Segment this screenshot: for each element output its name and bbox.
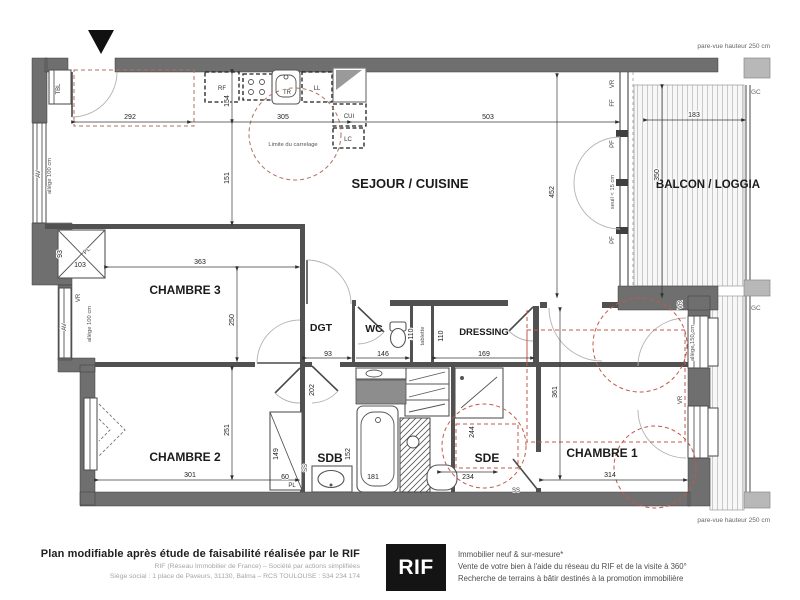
dim-dressing-width: 169	[478, 351, 490, 358]
footer-title: Plan modifiable après étude de faisabili…	[20, 548, 360, 560]
sde-basin	[427, 465, 457, 490]
room-label-chambre3: CHAMBRE 3	[149, 283, 221, 297]
tag-av-1: AV	[36, 170, 42, 178]
sde-door	[513, 459, 537, 489]
footer-services: Immobilier neuf & sur-mesure* Vente de v…	[458, 549, 687, 585]
rif-logo: RIF	[386, 544, 446, 591]
dim-balcon-depth: 350	[654, 169, 661, 181]
room-label-sdb: SDB	[317, 451, 343, 465]
chambre2-window	[84, 398, 97, 470]
footer-disclaimer: Plan modifiable après étude de faisabili…	[20, 548, 360, 582]
dim-ch1-width: 314	[604, 472, 616, 479]
dim-kitchen-width: 305	[277, 114, 289, 121]
tag-sink: TR	[283, 90, 292, 96]
chambre1-door	[549, 308, 602, 361]
tag-gc-1: GC	[751, 89, 761, 96]
annotation-tiling-limit: Limite du carrelage	[268, 142, 317, 148]
room-label-sde: SDE	[475, 451, 500, 465]
dim-ch2-depth: 251	[224, 424, 231, 436]
dim-ch3-width: 363	[194, 259, 206, 266]
pillar	[744, 58, 770, 78]
sejour-window-wall	[616, 72, 633, 286]
room-label-sejour: SEJOUR / CUISINE	[351, 176, 468, 191]
annotation-sill-100-1: allège 100 cm	[47, 158, 53, 194]
annotation-pare-vue-top: pare-vue hauteur 250 cm	[697, 43, 770, 50]
tag-washer: LL	[314, 86, 321, 92]
tag-ss-1: SS	[303, 464, 309, 472]
turning-circle	[593, 298, 687, 392]
tag-electrical-board: TBL	[56, 83, 62, 95]
north-arrow-icon	[88, 30, 114, 54]
bathroom-fixtures	[312, 322, 503, 492]
room-label-dgt: DGT	[310, 322, 333, 334]
dim-dgt-width: 93	[324, 351, 332, 358]
bed-zone	[527, 330, 685, 442]
tag-fridge: RF	[218, 86, 226, 92]
floor-plan-sheet: SEJOUR / CUISINE BALCON / LOGGIA CHAMBRE…	[0, 0, 800, 600]
dim-sdb-width: 152	[345, 448, 352, 460]
kitchen-appliances	[49, 68, 366, 148]
room-label-chambre1: CHAMBRE 1	[566, 446, 638, 460]
dim-ch3-closet-width: 103	[74, 262, 86, 269]
dim-dgt-depth: 202	[309, 384, 316, 396]
dim-sde-depth: 244	[469, 426, 476, 438]
tag-av-2: AV	[62, 323, 68, 331]
dim-entry-width: 292	[124, 114, 136, 121]
dim-ch1-depth: 361	[552, 386, 559, 398]
dim-niche-depth: 110	[438, 330, 445, 341]
annotation-sill-150: allège 150 cm	[690, 325, 696, 361]
dim-kitchen-depth-a: 154	[224, 95, 231, 107]
hob	[243, 74, 273, 100]
dim-kitchen-depth-b: 151	[224, 172, 231, 184]
dim-sejour-width: 503	[482, 114, 494, 121]
annotation-shelf: tablette	[420, 326, 426, 345]
footer-tagline-1: Immobilier neuf & sur-mesure*	[458, 549, 687, 561]
room-label-balcon: BALCON / LOGGIA	[656, 179, 760, 191]
linen-shelves	[405, 368, 449, 416]
tag-closet2: PL	[288, 483, 296, 489]
tag-pf-2: PF	[610, 236, 616, 244]
pillar	[744, 280, 770, 296]
counter	[356, 380, 406, 404]
tag-vr-1: VR	[76, 293, 82, 302]
tag-vr-2: VR	[610, 79, 616, 88]
tag-pf-1: PF	[610, 140, 616, 148]
pillar	[744, 492, 770, 508]
tag-ss-2: SS	[512, 488, 520, 494]
annotation-threshold: seuil < 15 cm	[610, 175, 616, 209]
room-label-wc: WC	[365, 323, 383, 335]
dim-bath-length: 181	[367, 474, 379, 481]
dim-sejour-depth: 452	[549, 186, 556, 198]
annotation-pare-vue-bottom: pare-vue hauteur 250 cm	[697, 517, 770, 524]
tag-ff: FF	[610, 99, 616, 107]
room-label-dressing: DRESSING	[459, 327, 509, 338]
footer-tagline-3: Recherche de terrains à bâtir destinés à…	[458, 573, 687, 585]
dim-ch2-closet-height: 149	[273, 448, 280, 460]
footer-tagline-2: Vente de votre bien à l'aide du réseau d…	[458, 561, 687, 573]
dressing-door	[509, 307, 533, 331]
dim-ch3-closet-depth: 93	[57, 250, 64, 258]
annotation-sill-100-2: allège 100 cm	[87, 306, 93, 342]
technical-shaft	[400, 418, 430, 492]
floor-plan-drawing: SEJOUR / CUISINE BALCON / LOGGIA CHAMBRE…	[0, 0, 800, 540]
tag-dishwasher: LC	[344, 137, 352, 143]
footer-address-line: Siège social : 1 place de Paveurs, 31130…	[20, 572, 360, 582]
vanity-top	[356, 368, 406, 379]
dim-ch3-depth: 250	[229, 314, 236, 326]
dim-ch2-closet-width: 60	[281, 474, 289, 481]
chambre1-window-door-swing	[638, 318, 686, 366]
tag-vr-4: VR	[678, 395, 684, 404]
tag-kitchen: CUI	[344, 114, 355, 120]
dim-balcon-width: 183	[688, 112, 700, 119]
dim-wc-depth: 110	[408, 328, 415, 339]
room-label-chambre2: CHAMBRE 2	[149, 450, 221, 464]
tag-gc-2: GC	[751, 305, 761, 312]
dim-sde-width: 234	[462, 474, 474, 481]
dim-ch2-width: 301	[184, 472, 196, 479]
tag-vr-3: VR	[678, 300, 684, 309]
dim-wc-width: 146	[377, 351, 389, 358]
footer-company-line: RIF (Réseau Immobilier de France) – Soci…	[20, 562, 360, 572]
chambre1-window-2	[688, 406, 708, 458]
chambre3-window	[59, 288, 71, 358]
chambre2-door	[275, 368, 300, 393]
